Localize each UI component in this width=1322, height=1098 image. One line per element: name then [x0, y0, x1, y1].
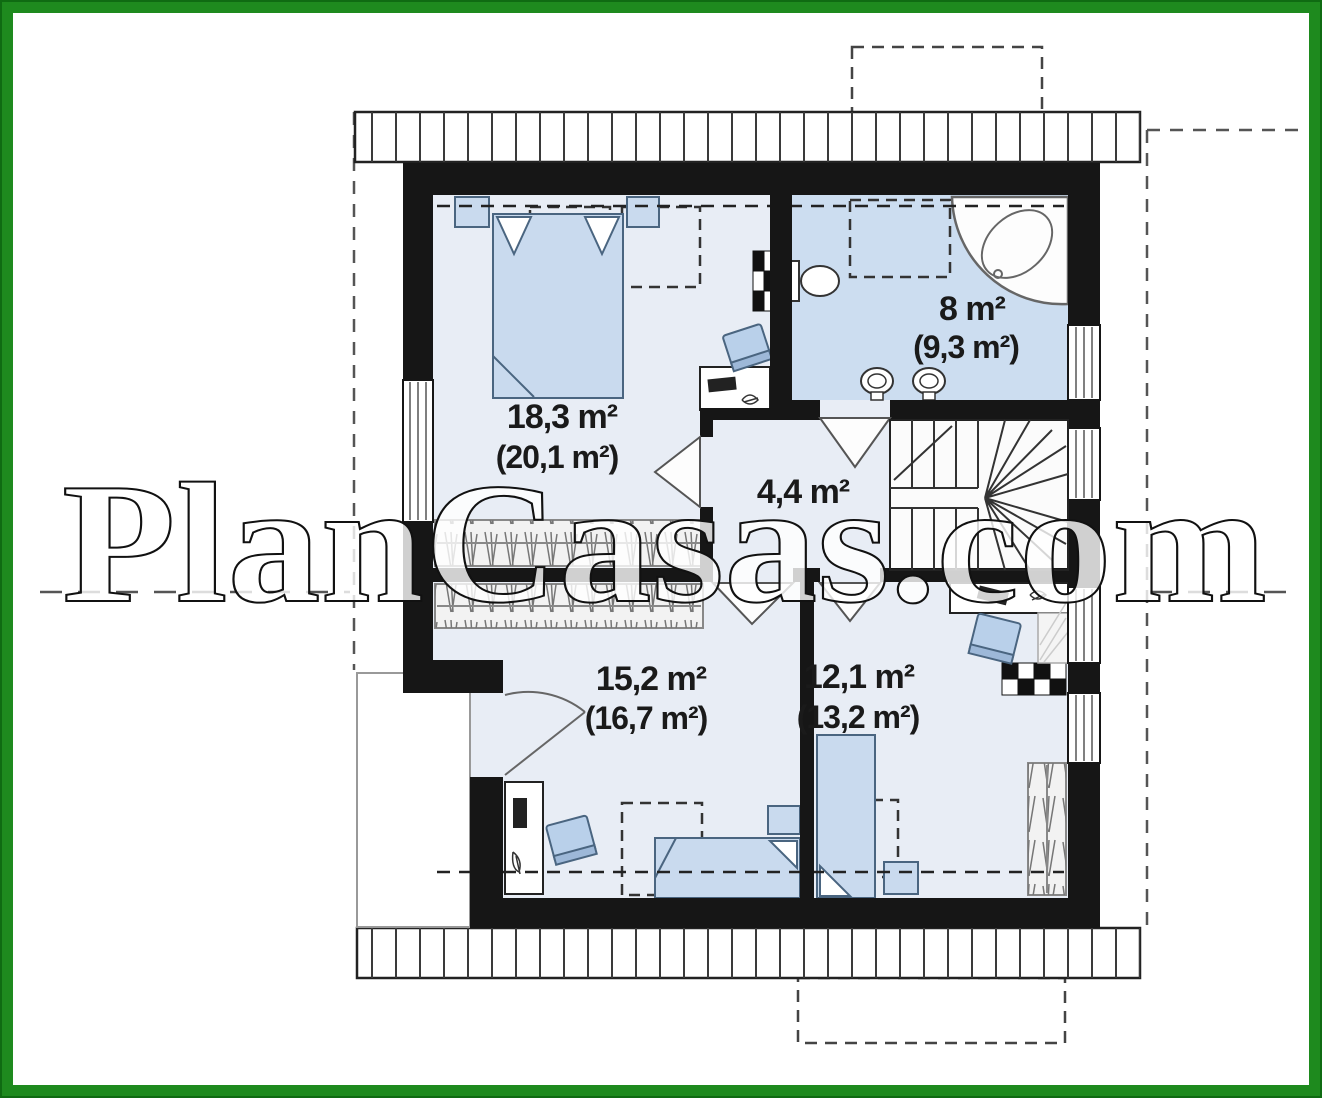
- wall-right: [1068, 400, 1100, 428]
- monitor-icon: [513, 798, 527, 828]
- wall-right: [1068, 195, 1100, 325]
- room-area-label: 8 m²: [939, 290, 1006, 328]
- window-icon: [1068, 693, 1100, 763]
- room-area-label: 12,1 m²: [804, 658, 915, 696]
- sink-icon: [913, 368, 945, 394]
- nightstand-icon: [627, 197, 659, 227]
- eave-strip-bottom-hatch: [357, 928, 1140, 978]
- sink-tap: [871, 392, 883, 400]
- room-area-label: 15,2 m²: [596, 660, 707, 698]
- wall-hall-west: [700, 408, 713, 437]
- wall-bathroom-divider: [770, 195, 792, 420]
- wall-bathroom-south: [890, 400, 1068, 420]
- window-icon: [1068, 325, 1100, 400]
- watermark-text: PlanCasas.com: [62, 449, 1267, 639]
- balcony: [357, 673, 470, 927]
- room-area-label: 18,3 m²: [507, 398, 618, 436]
- wall-bottom: [470, 898, 1100, 928]
- floor-plan: 18,3 m² (20,1 m²) 8 m² (9,3 m²) 4,4 m² 1…: [0, 0, 1322, 1098]
- room-area-gross-label: (9,3 m²): [913, 329, 1019, 365]
- room-area-gross-label: (13,2 m²): [797, 699, 920, 735]
- wall-left-upper: [403, 195, 433, 380]
- toilet-icon: [801, 266, 839, 296]
- nightstand-icon: [768, 806, 800, 834]
- sink-icon: [861, 368, 893, 394]
- wall-right: [1068, 763, 1100, 928]
- room-area-gross-label: (16,7 m²): [585, 700, 708, 736]
- chimney-flue-icon: [1002, 663, 1066, 695]
- wall-right: [1068, 663, 1100, 693]
- wall-bathroom-south: [792, 400, 820, 420]
- wall-jog: [403, 660, 503, 693]
- eave-strip-top-hatch: [355, 112, 1140, 162]
- wall-top: [403, 163, 1100, 195]
- nightstand-icon: [455, 197, 489, 227]
- sink-tap: [923, 392, 935, 400]
- nightstand-icon: [884, 862, 918, 894]
